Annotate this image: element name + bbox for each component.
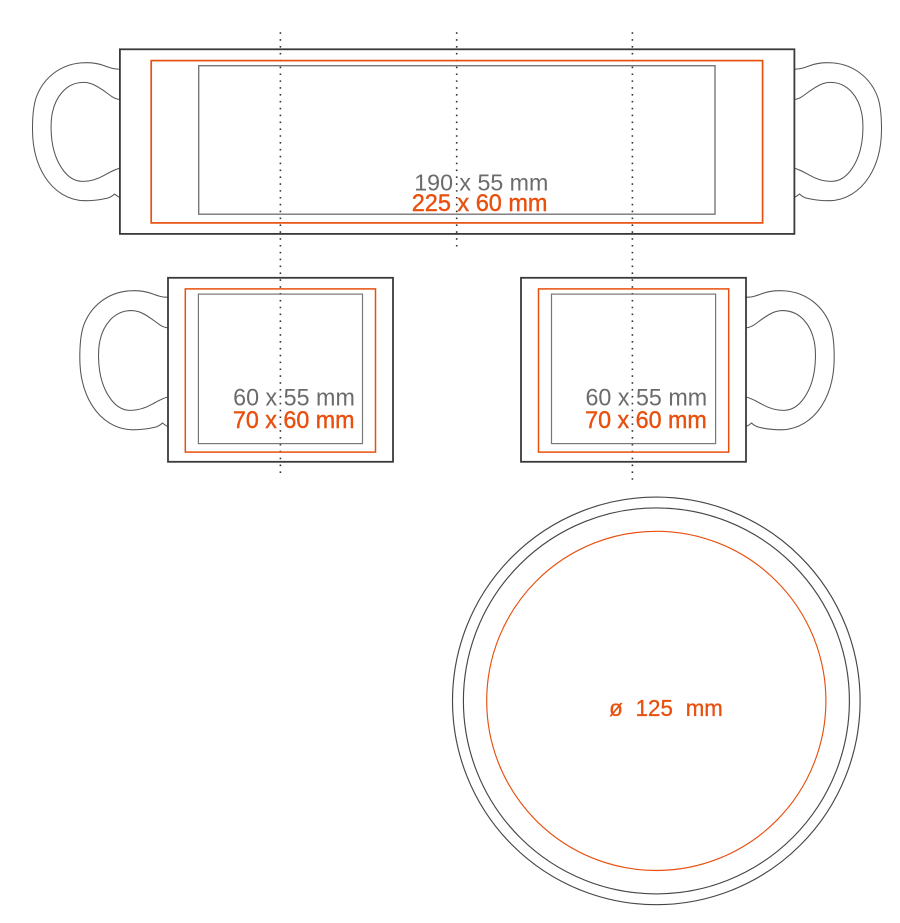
svg-text:ø 125 mm: ø 125 mm (609, 696, 723, 721)
svg-text:70 x 60 mm: 70 x 60 mm (233, 407, 355, 435)
svg-text:70 x 60 mm: 70 x 60 mm (585, 407, 707, 435)
svg-text:225 x 60 mm: 225 x 60 mm (412, 190, 548, 217)
